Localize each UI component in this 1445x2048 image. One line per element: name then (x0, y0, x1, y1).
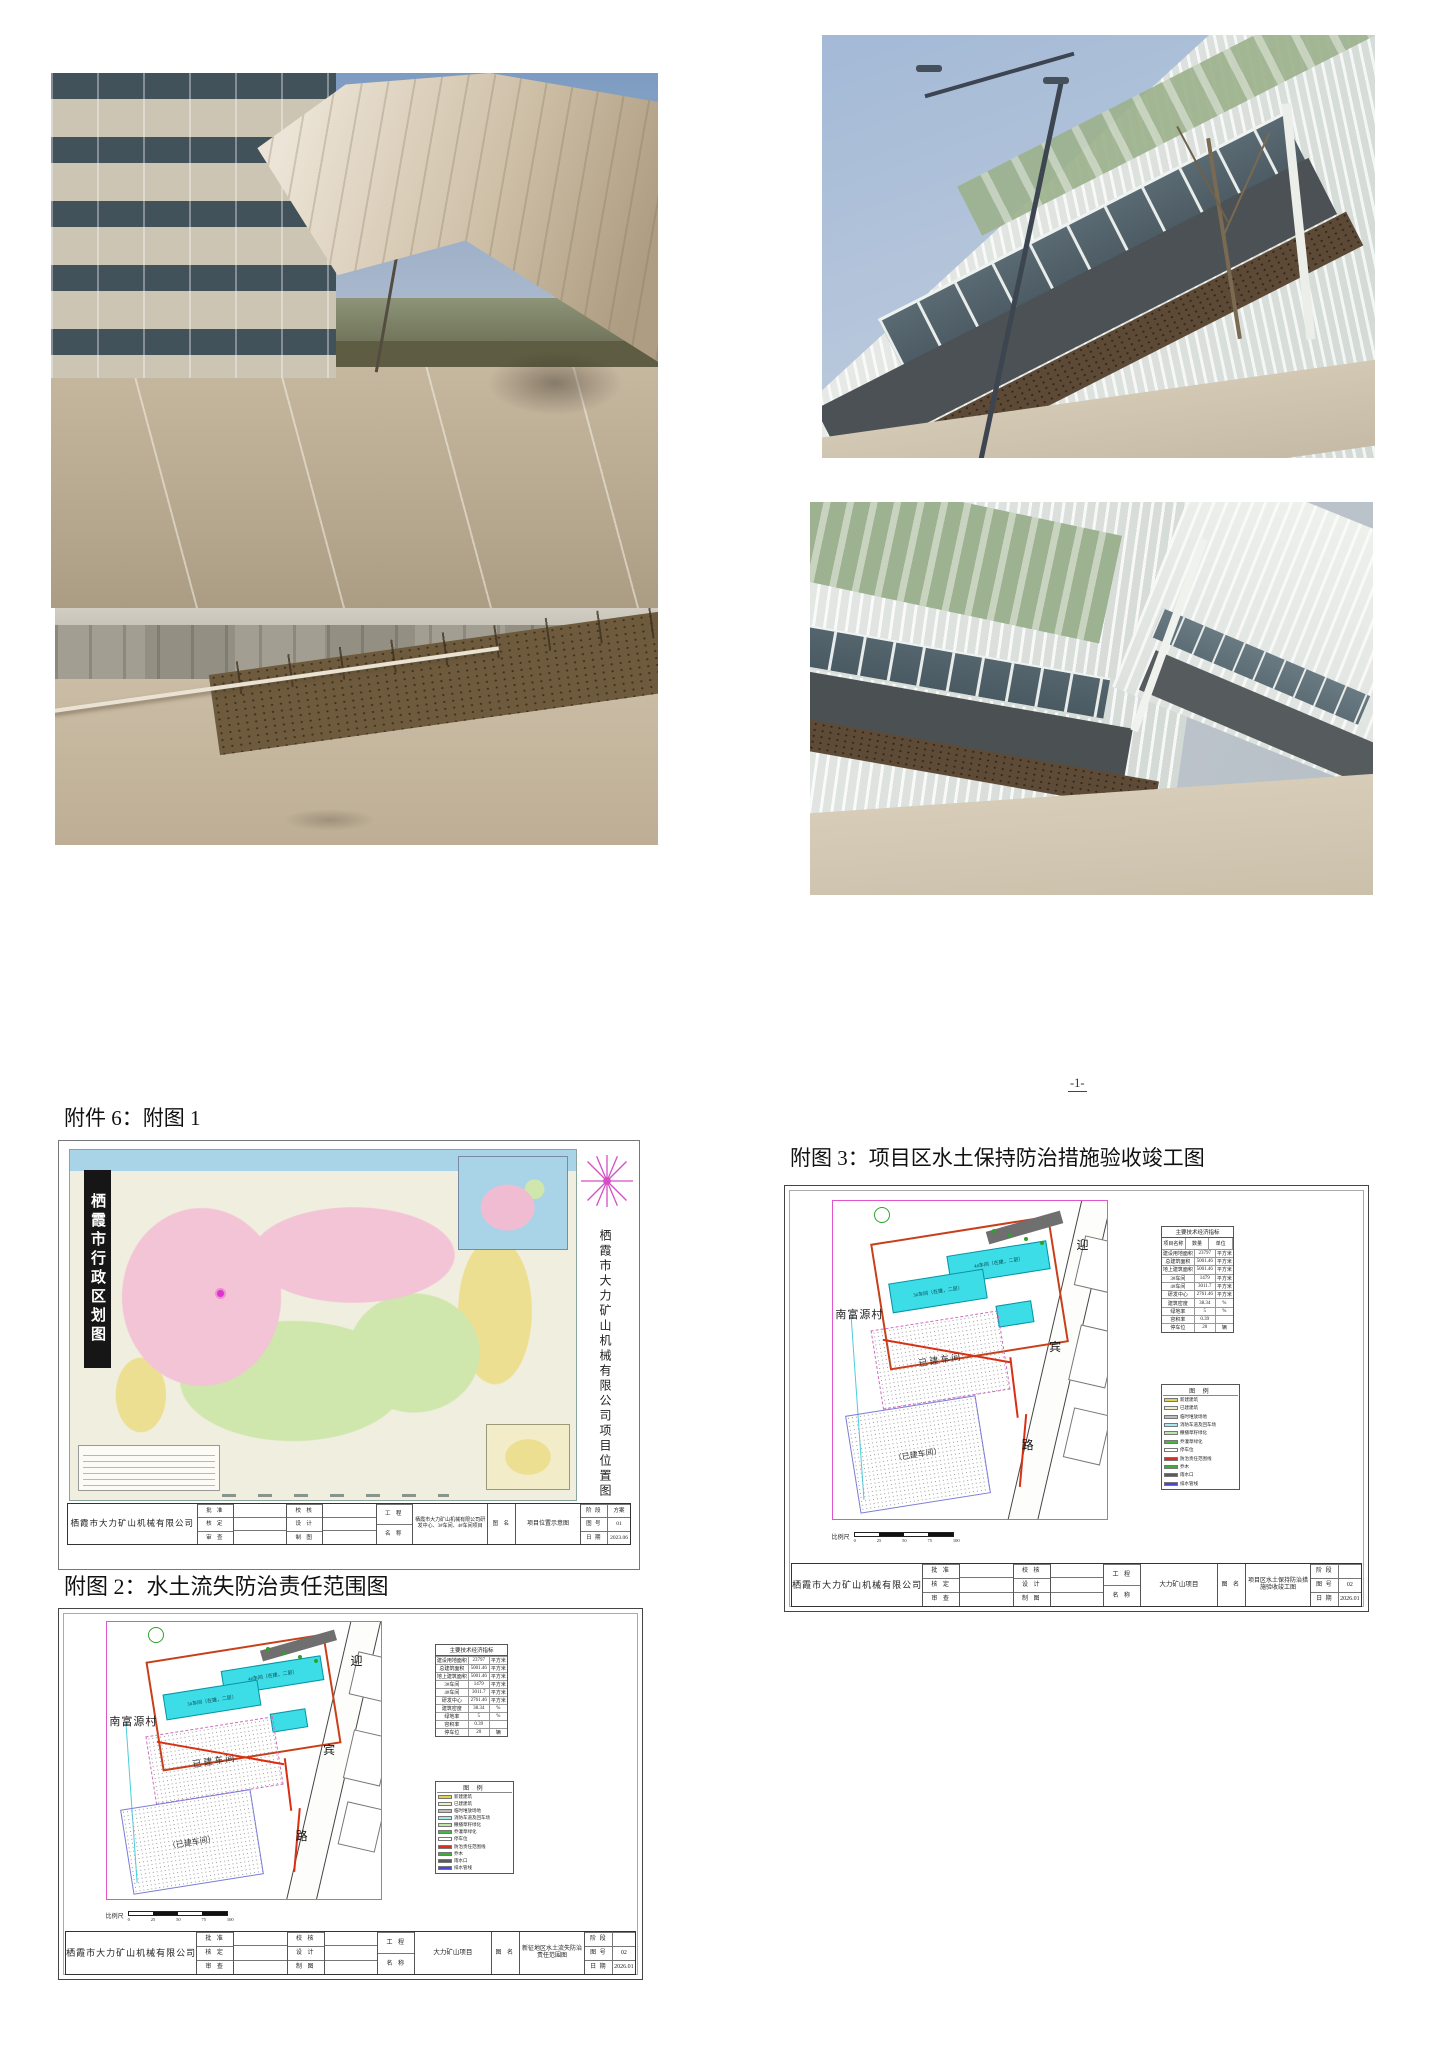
tech-indicator-table: 主要技术经济指标 项目名称数量单位 建设用地面积 23797 平方米 总建筑面积… (1161, 1226, 1234, 1332)
figure-name-value: 新征地区水土流失防治责任范围图 (519, 1932, 584, 1974)
map-legend-box (78, 1445, 220, 1491)
check-labels: 校 核设 计制 图 (287, 1932, 324, 1974)
lamp-arm (924, 52, 1074, 99)
legend-swatch (438, 1830, 452, 1834)
scale-bar: 比例尺 0255075100 (832, 1532, 960, 1543)
lamp-head (1043, 77, 1069, 84)
company-name: 栖霞市大力矿山机械有限公司 (792, 1564, 922, 1606)
company-name: 栖霞市大力矿山机械有限公司 (68, 1504, 197, 1544)
legend-table: 图 例 新建建筑 已建建筑 临时堆放场地 (435, 1781, 514, 1874)
road-name-char: 路 (1022, 1436, 1034, 1453)
legend-title: 图 例 (437, 1783, 512, 1793)
site-plan: 4#车间（在建，二层） 3#车间（在建，二层） 已建车间 （已建车间） 南富源村… (106, 1621, 382, 1901)
legend-swatch (1164, 1415, 1178, 1419)
table-rows: 建设用地面积 23797 平方米 总建筑面积 5001.46 平方米 地上建筑面… (1162, 1250, 1233, 1332)
legend-swatch (438, 1795, 452, 1799)
legend-swatch (1164, 1406, 1178, 1410)
check-values (322, 1504, 375, 1544)
responsibility-boundary-line (284, 1758, 292, 1811)
compass-rose-icon (581, 1155, 633, 1207)
responsibility-boundary-line (1010, 1357, 1019, 1417)
legend-swatch (438, 1816, 452, 1820)
photo-canopy-plaza (51, 73, 658, 608)
legend-swatch (1164, 1440, 1178, 1444)
check-values (324, 1932, 378, 1974)
table-title: 主要技术经济指标 (436, 1645, 507, 1656)
figure2-drawing-sheet: 4#车间（在建，二层） 3#车间（在建，二层） 已建车间 （已建车间） 南富源村… (58, 1608, 643, 1980)
village-label: 南富源村 (109, 1713, 157, 1729)
scale-bar-label: 比例尺 (106, 1911, 124, 1920)
project-name-value: 大力矿山项目 (1140, 1564, 1216, 1606)
scanned-report-page: -1- 附件 6：附图 1 附图 3：项目区水土保持防治措施验收竣工图 附图 2… (0, 0, 1445, 2048)
legend-swatch (1164, 1482, 1178, 1486)
map-scale-strip (222, 1494, 450, 1497)
lamp-head (916, 65, 942, 72)
meta-rows: 阶 段 图 号 02 日 期 2026.01 (584, 1932, 635, 1974)
legend-swatch (1164, 1431, 1178, 1435)
built-workshop-area: （已建车间） (845, 1395, 990, 1513)
project-label: 工 程名 称 (376, 1504, 412, 1544)
scale-bar-segments (854, 1532, 954, 1537)
legend-swatch (1164, 1398, 1178, 1402)
legend-swatch (438, 1837, 452, 1841)
figure-name-value: 项目位置示意图 (515, 1504, 579, 1544)
page-number: -1- (1068, 1076, 1087, 1092)
map-title-banner: 栖霞市行政区划图 (84, 1170, 111, 1368)
meta-rows: 阶 段 图 号 02 日 期 2026.01 (1310, 1564, 1361, 1606)
map-inset-bottom-right (486, 1424, 570, 1490)
figure-name-label: 图 名 (487, 1504, 515, 1544)
approve-values (233, 1932, 287, 1974)
project-location-marker (217, 1290, 224, 1297)
legend-swatch (1164, 1448, 1178, 1452)
attachment6-heading: 附件 6：附图 1 (64, 1102, 201, 1132)
company-name: 栖霞市大力矿山机械有限公司 (66, 1932, 196, 1974)
meta-rows: 阶 段 方案 图 号 01 日 期 2023.06 (580, 1504, 630, 1544)
puddle (284, 809, 374, 830)
scale-bar-label: 比例尺 (832, 1532, 850, 1541)
legend-swatch (438, 1859, 452, 1863)
road-name-char: 路 (296, 1827, 308, 1844)
office-building (51, 73, 336, 378)
village-label: 南富源村 (835, 1306, 883, 1322)
legend-swatch (438, 1823, 452, 1827)
tree-symbol (874, 1207, 890, 1223)
tree-symbols (266, 1647, 270, 1651)
legend-rows: 新建建筑 已建建筑 临时堆放场地 消防车道及回车场 (437, 1793, 512, 1872)
scale-bar-ticks: 0255075100 (854, 1538, 960, 1543)
legend-title: 图 例 (1163, 1386, 1238, 1396)
project-name-value: 栖霞市大力矿山机械有限公司研发中心、3#车间、4#车间项目 (412, 1504, 488, 1544)
map-figure-sheet: 栖霞市行政区划图 栖霞市大力矿山机械有限公司项目位置图 栖霞市大力矿山机械有限公… (58, 1140, 640, 1570)
map-title-block: 栖霞市大力矿山机械有限公司 批 准核 定审 查 校 核设 计制 图 工 程名 称… (67, 1503, 631, 1545)
map-side-title: 栖霞市大力矿山机械有限公司项目位置图 (597, 1229, 614, 1501)
legend-swatch (438, 1845, 452, 1849)
legend-swatch (438, 1802, 452, 1806)
approve-labels: 批 准核 定审 查 (922, 1564, 959, 1606)
tree-symbol (148, 1627, 164, 1643)
table-rows: 建设用地面积 23797 平方米 总建筑面积 5001.46 平方米 地上建筑面… (436, 1657, 507, 1736)
project-label: 工 程名 称 (1103, 1564, 1140, 1606)
project-label: 工 程名 称 (377, 1932, 414, 1974)
photo-workshop-facade (822, 35, 1375, 458)
figure3-heading: 附图 3：项目区水土保持防治措施验收竣工图 (790, 1142, 1205, 1172)
photo-warehouse-corner (810, 502, 1373, 895)
project-name-value: 大力矿山项目 (414, 1932, 490, 1974)
road-name-char: 宾 (1049, 1338, 1061, 1355)
check-labels: 校 核设 计制 图 (1013, 1564, 1050, 1606)
legend-swatch (438, 1809, 452, 1813)
qixia-administrative-map: 栖霞市行政区划图 (69, 1149, 577, 1501)
figure-name-label: 图 名 (491, 1932, 519, 1974)
legend-rows: 新建建筑 已建建筑 临时堆放场地 消防车道及回车场 (1163, 1396, 1238, 1488)
check-values (1050, 1564, 1104, 1606)
figure-name-value: 项目区水土保持防治措施验收竣工图 (1245, 1564, 1310, 1606)
shadow (488, 351, 622, 415)
figure3-drawing-sheet: 4#车间（在建，二层） 3#车间（在建，二层） 已建车间 （已建车间） 南富源村… (784, 1185, 1369, 1612)
approve-values (959, 1564, 1013, 1606)
approve-labels: 批 准核 定审 查 (197, 1504, 233, 1544)
site-plan: 4#车间（在建，二层） 3#车间（在建，二层） 已建车间 （已建车间） 南富源村… (832, 1200, 1108, 1521)
scale-bar-ticks: 0255075100 (128, 1917, 234, 1922)
drawing-title-block: 栖霞市大力矿山机械有限公司 批 准核 定审 查 校 核设 计制 图 工 程名 称… (791, 1563, 1362, 1607)
legend-swatch (1164, 1465, 1178, 1469)
road-name-char: 宾 (323, 1741, 335, 1758)
map-inset-top-right (458, 1156, 568, 1250)
scale-bar: 比例尺 0255075100 (106, 1911, 234, 1922)
scale-bar-segments (128, 1911, 228, 1916)
adjacent-block (338, 1801, 382, 1853)
legend-swatch (1164, 1473, 1178, 1477)
road-name-char: 迎 (350, 1652, 362, 1669)
approve-labels: 批 准核 定审 查 (196, 1932, 233, 1974)
legend-swatch (438, 1852, 452, 1856)
approve-values (233, 1504, 286, 1544)
photo-access-road (55, 608, 658, 845)
legend-table: 图 例 新建建筑 已建建筑 临时堆放场地 (1161, 1384, 1240, 1490)
legend-swatch (1164, 1423, 1178, 1427)
table-title: 主要技术经济指标 (1162, 1227, 1233, 1238)
adjacent-block (1063, 1407, 1108, 1465)
legend-swatch (438, 1866, 452, 1870)
drawing-title-block: 栖霞市大力矿山机械有限公司 批 准核 定审 查 校 核设 计制 图 工 程名 称… (65, 1931, 636, 1975)
table-header-row: 项目名称数量单位 (1162, 1238, 1233, 1249)
legend-swatch (1164, 1457, 1178, 1461)
road-name-char: 迎 (1076, 1236, 1088, 1253)
tree-symbols (992, 1229, 996, 1233)
check-labels: 校 核设 计制 图 (286, 1504, 322, 1544)
figure-name-label: 图 名 (1217, 1564, 1245, 1606)
built-workshop-area: （已建车间） (120, 1790, 263, 1896)
figure2-heading: 附图 2：水土流失防治责任范围图 (64, 1569, 389, 1601)
tech-indicator-table: 主要技术经济指标 项目名称数量单位 建设用地面积 23797 平方米 总建筑面积… (435, 1644, 508, 1737)
